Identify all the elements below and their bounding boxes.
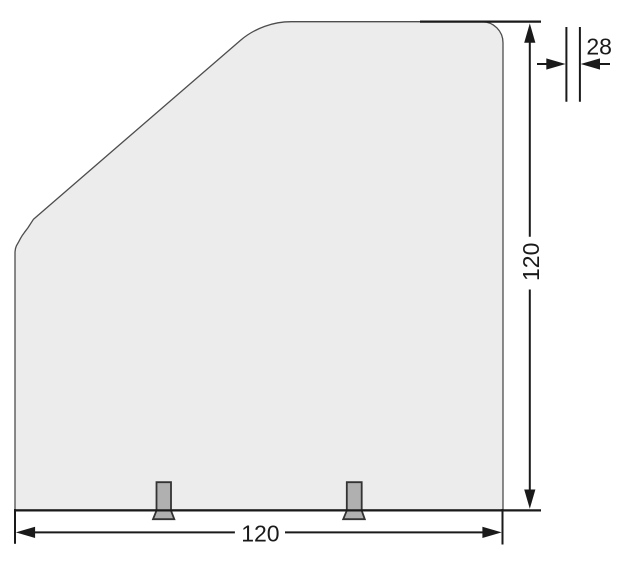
- svg-text:28: 28: [586, 34, 612, 60]
- svg-text:120: 120: [241, 520, 279, 546]
- svg-text:120: 120: [518, 243, 544, 281]
